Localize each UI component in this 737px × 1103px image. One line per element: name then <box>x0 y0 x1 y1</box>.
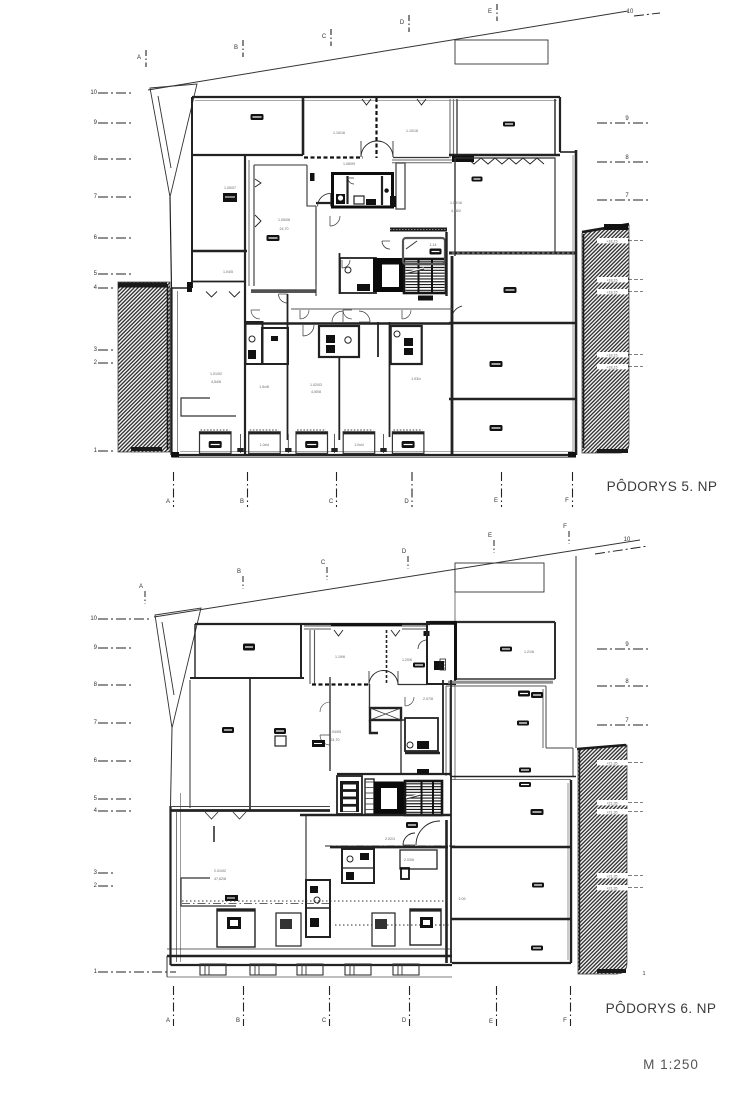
svg-text:+21,35: +21,35 <box>606 802 617 806</box>
svg-text:4,54/8: 4,54/8 <box>211 380 221 384</box>
svg-text:+18,15: +18,15 <box>606 291 617 295</box>
svg-text:+21,35: +21,35 <box>606 762 617 766</box>
svg-text:4,18/2: 4,18/2 <box>451 209 461 213</box>
svg-text:F: F <box>565 498 569 504</box>
svg-text:E: E <box>494 498 498 504</box>
svg-text:C: C <box>329 499 334 505</box>
svg-text:1.21/6: 1.21/6 <box>524 650 534 654</box>
svg-text:1.08/09: 1.08/09 <box>343 162 355 166</box>
svg-text:1.20/6: 1.20/6 <box>402 658 412 662</box>
svg-text:1.05/07: 1.05/07 <box>224 186 236 190</box>
svg-text:+21,35: +21,35 <box>606 875 617 879</box>
svg-text:+18,15: +18,15 <box>606 240 617 244</box>
svg-text:2.03/6: 2.03/6 <box>404 858 414 862</box>
svg-text:+18,15: +18,15 <box>606 354 617 358</box>
svg-text:A: A <box>166 1018 170 1024</box>
svg-text:10: 10 <box>627 9 634 15</box>
svg-text:10: 10 <box>624 537 631 543</box>
svg-text:47,62/8: 47,62/8 <box>214 877 226 881</box>
svg-text:PÔDORYS 5. NP: PÔDORYS 5. NP <box>607 479 718 494</box>
svg-text:4,50/8: 4,50/8 <box>311 390 321 394</box>
svg-text:A: A <box>139 584 143 590</box>
svg-text:1.05/06: 1.05/06 <box>278 218 290 222</box>
svg-text:C: C <box>322 34 327 40</box>
svg-text:A: A <box>166 499 170 505</box>
svg-text:24,70: 24,70 <box>280 227 289 231</box>
svg-text:D: D <box>404 499 409 505</box>
svg-text:E: E <box>488 9 492 15</box>
svg-text:B: B <box>240 499 244 505</box>
svg-text:C: C <box>321 560 326 566</box>
svg-text:B: B <box>236 1018 240 1024</box>
svg-text:E: E <box>488 533 492 539</box>
svg-text:10: 10 <box>90 90 97 96</box>
svg-text:+18,15: +18,15 <box>606 279 617 283</box>
svg-text:1.19/6: 1.19/6 <box>335 655 345 659</box>
svg-text:PÔDORYS 6. NP: PÔDORYS 6. NP <box>606 1001 717 1016</box>
svg-text:1.01/02: 1.01/02 <box>210 372 222 376</box>
svg-text:C: C <box>322 1018 327 1024</box>
svg-text:1: 1 <box>642 971 645 977</box>
svg-text:+21,35: +21,35 <box>606 811 617 815</box>
svg-text:+21,35: +21,35 <box>606 887 617 891</box>
svg-text:2.04/05: 2.04/05 <box>329 730 341 734</box>
svg-text:1.5x/8: 1.5x/8 <box>259 385 269 389</box>
svg-text:1.14: 1.14 <box>430 243 437 247</box>
svg-text:B: B <box>234 45 238 51</box>
svg-text:1.0x/d: 1.0x/d <box>260 443 269 447</box>
svg-text:M 1:250: M 1:250 <box>643 1057 699 1072</box>
svg-text:E: E <box>489 1019 493 1025</box>
svg-text:2.09: 2.09 <box>459 897 466 901</box>
svg-text:2.01/02: 2.01/02 <box>214 869 226 873</box>
svg-text:2.07/8: 2.07/8 <box>423 697 433 701</box>
svg-text:1.0x/d: 1.0x/d <box>354 443 363 447</box>
svg-text:1.04/5: 1.04/5 <box>223 270 233 274</box>
svg-text:D: D <box>402 549 407 555</box>
svg-text:D: D <box>400 20 405 26</box>
svg-text:24,70: 24,70 <box>331 738 340 742</box>
svg-text:1.09/16: 1.09/16 <box>450 201 462 205</box>
svg-text:1.03/x: 1.03/x <box>411 377 421 381</box>
svg-text:1.10/16: 1.10/16 <box>333 131 345 135</box>
svg-text:F: F <box>563 1018 567 1024</box>
svg-text:F: F <box>563 524 567 530</box>
svg-text:10: 10 <box>90 616 97 622</box>
svg-text:1.02/03: 1.02/03 <box>310 383 322 387</box>
svg-text:1.10/16: 1.10/16 <box>406 129 418 133</box>
svg-text:2.02/3: 2.02/3 <box>385 837 395 841</box>
svg-text:A: A <box>137 55 141 61</box>
svg-text:+18,15: +18,15 <box>606 366 617 370</box>
svg-text:D: D <box>402 1018 407 1024</box>
svg-text:B: B <box>237 569 241 575</box>
